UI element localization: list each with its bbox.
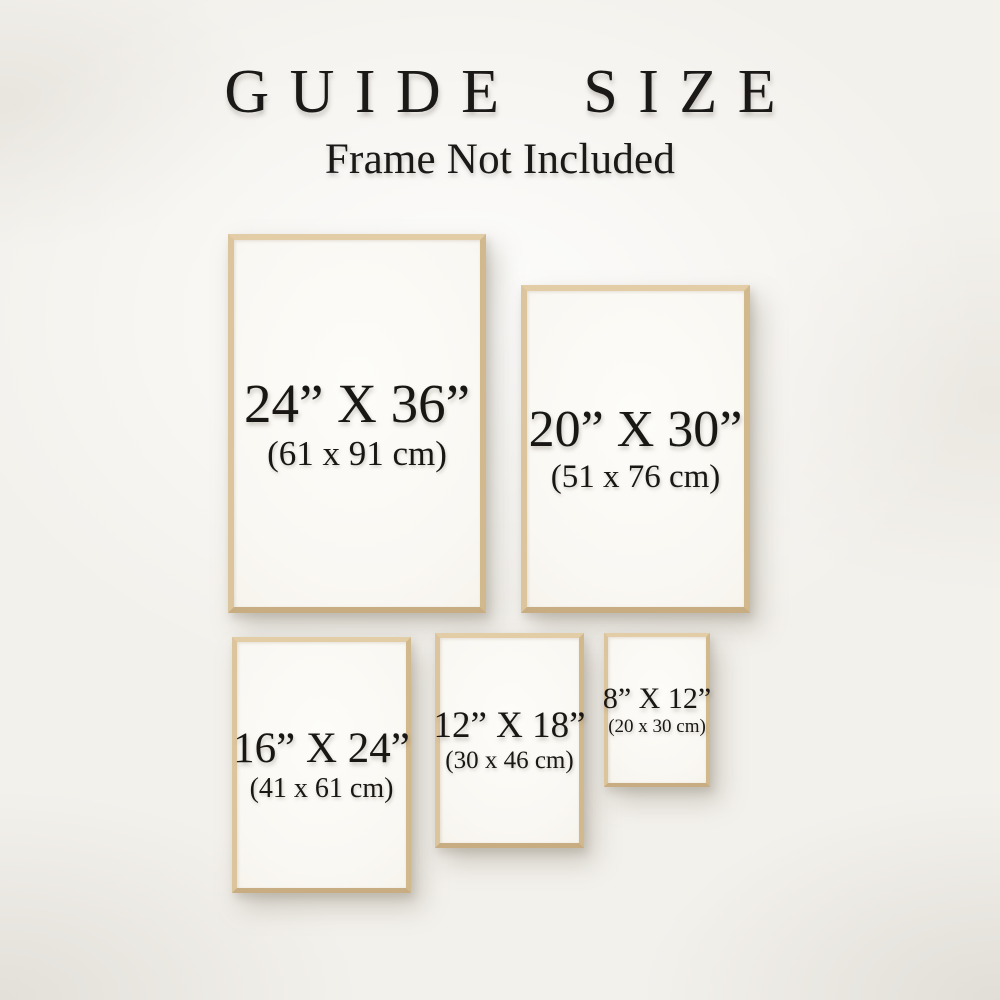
frame-20x30: 20” X 30” (51 x 76 cm)	[521, 285, 750, 613]
frame-20x30-size-inches: 20” X 30”	[529, 401, 743, 459]
frame-12x18-size-cm: (30 x 46 cm)	[445, 747, 573, 776]
header: GUIDE SIZE Frame Not Included	[0, 58, 1000, 186]
frame-16x24: 16” X 24” (41 x 61 cm)	[232, 637, 411, 893]
frame-16x24-size-cm: (41 x 61 cm)	[250, 773, 394, 805]
frame-20x30-size-cm: (51 x 76 cm)	[551, 459, 721, 497]
frame-16x24-size-inches: 16” X 24”	[233, 725, 410, 773]
page-subtitle: Frame Not Included	[0, 134, 1000, 186]
frame-8x12-size-inches: 8” X 12”	[603, 682, 711, 716]
frame-24x36-size-cm: (61 x 91 cm)	[267, 434, 447, 474]
frame-12x18-size-inches: 12” X 18”	[433, 705, 585, 746]
size-guide-mockup: { "header": { "title": "GUIDE SIZE", "su…	[0, 0, 1000, 1000]
wall-background: GUIDE SIZE Frame Not Included 24” X 36” …	[0, 0, 1000, 1000]
frame-24x36: 24” X 36” (61 x 91 cm)	[228, 234, 486, 613]
page-title: GUIDE SIZE	[0, 58, 1000, 126]
frame-12x18: 12” X 18” (30 x 46 cm)	[435, 633, 584, 848]
frame-24x36-size-inches: 24” X 36”	[244, 373, 470, 435]
frame-8x12: 8” X 12” (20 x 30 cm)	[604, 633, 710, 787]
frame-8x12-size-cm: (20 x 30 cm)	[608, 716, 706, 738]
